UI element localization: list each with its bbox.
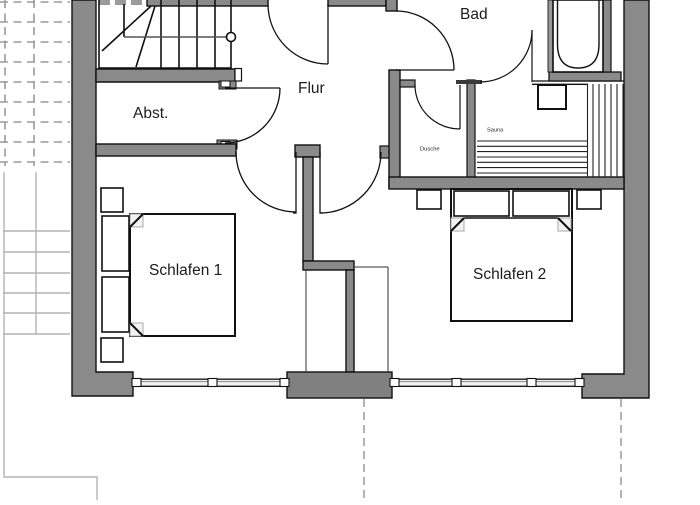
- svg-text:Bad: Bad: [460, 6, 488, 23]
- svg-text:Schlafen 2: Schlafen 2: [473, 266, 546, 283]
- svg-text:Abst.: Abst.: [133, 105, 168, 122]
- svg-text:Schlafen 1: Schlafen 1: [149, 262, 222, 279]
- svg-text:Dusche: Dusche: [420, 147, 440, 153]
- svg-text:Flur: Flur: [298, 80, 325, 97]
- svg-text:Sauna: Sauna: [487, 128, 504, 134]
